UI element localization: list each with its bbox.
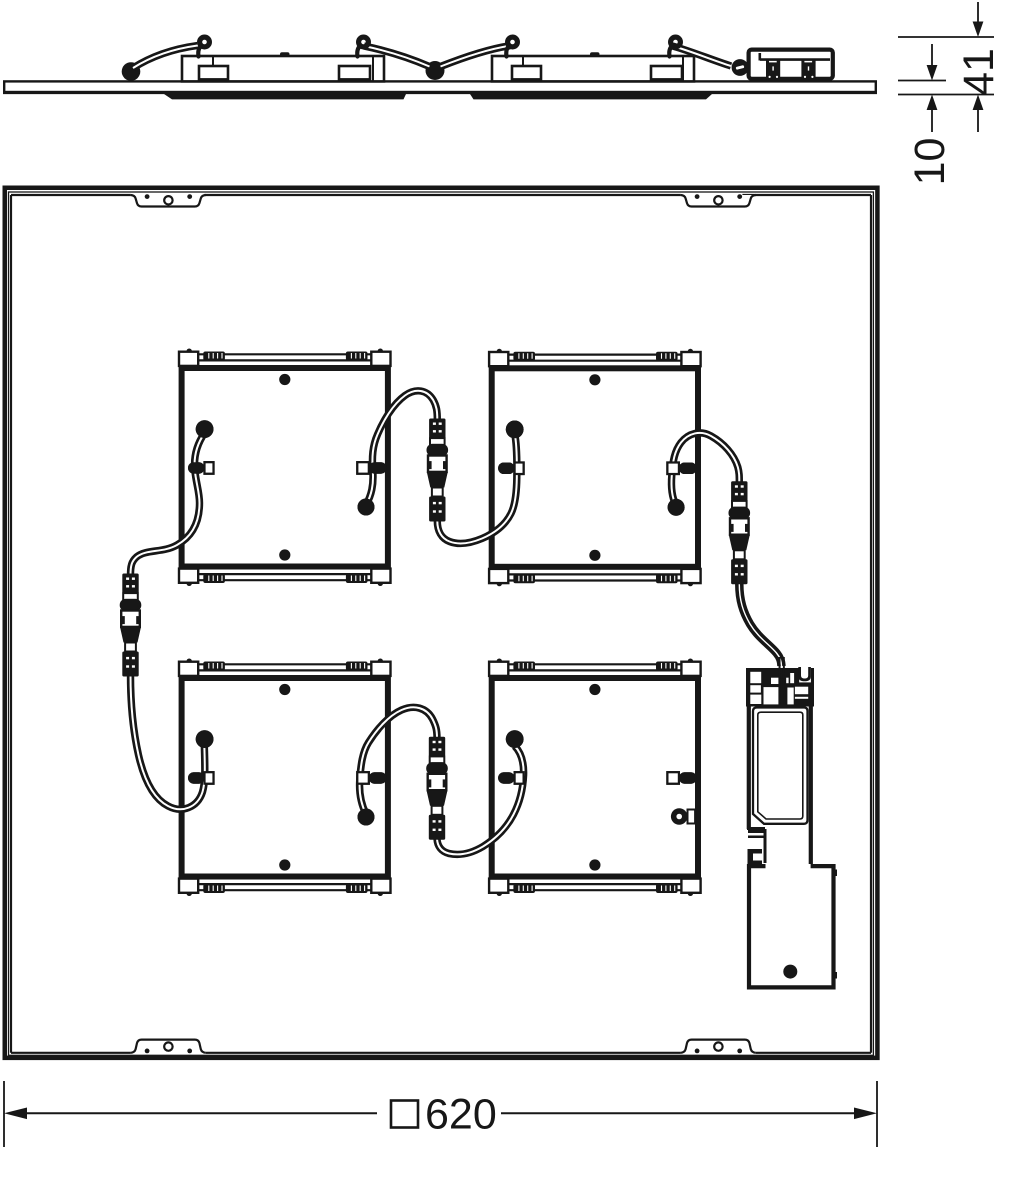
svg-text:620: 620 (425, 1091, 497, 1139)
svg-text:10: 10 (906, 138, 954, 186)
svg-text:41: 41 (955, 48, 1003, 96)
